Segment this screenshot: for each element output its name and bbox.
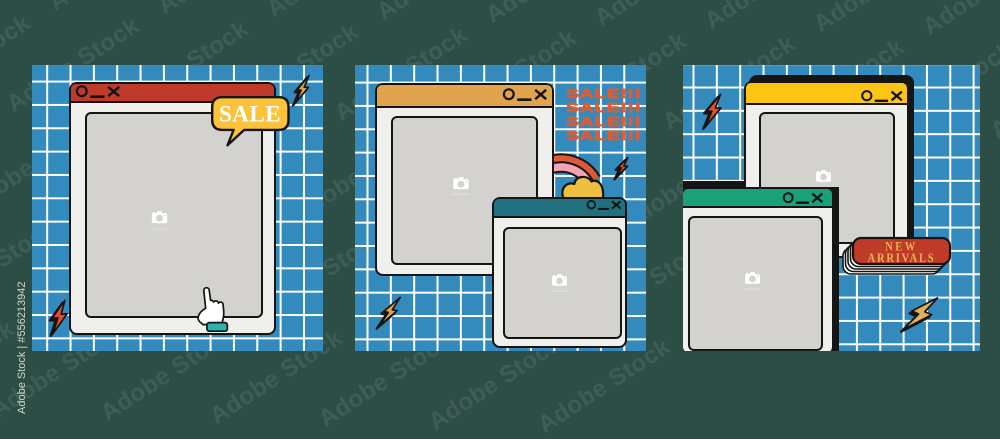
svg-text:ARRIVALS: ARRIVALS [868,252,936,265]
svg-text:SALE: SALE [218,102,280,127]
